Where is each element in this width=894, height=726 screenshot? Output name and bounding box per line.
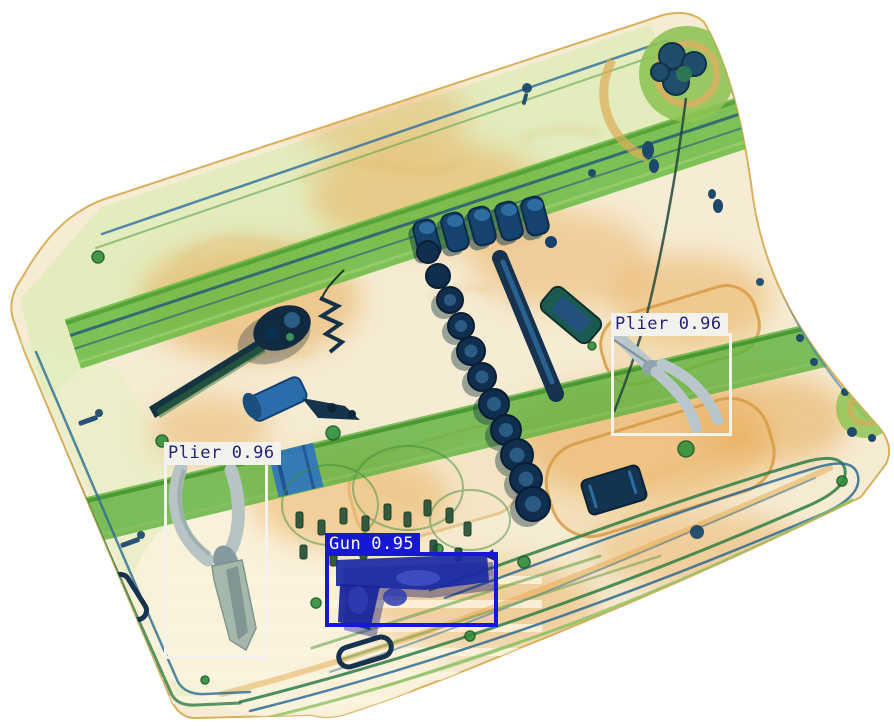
detection-label: Plier0.96 [164, 442, 281, 465]
detection-box-gun: Gun0.95 [325, 552, 498, 627]
detection-label: Plier0.96 [611, 313, 728, 336]
detection-label: Gun0.95 [325, 533, 420, 556]
detection-confidence: 0.96 [679, 314, 722, 334]
detection-class: Gun [329, 534, 361, 554]
detection-class: Plier [168, 443, 222, 463]
xray-annotated-image: Plier0.96 Plier0.96 Gun0.95 [0, 0, 894, 726]
detection-confidence: 0.95 [371, 534, 414, 554]
detection-box-plier-left: Plier0.96 [164, 462, 268, 659]
detection-class: Plier [615, 314, 669, 334]
detection-box-plier-top-right: Plier0.96 [611, 333, 732, 436]
detection-confidence: 0.96 [232, 443, 275, 463]
